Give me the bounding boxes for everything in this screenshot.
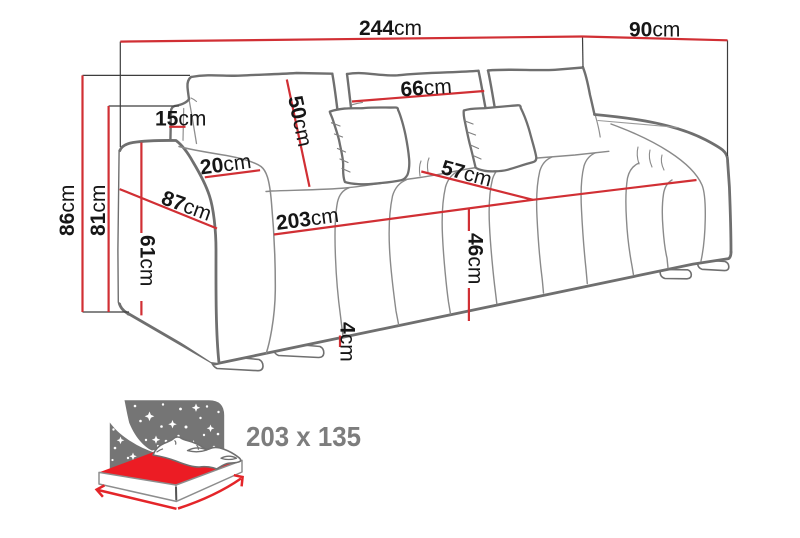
svg-text:66cm: 66cm [400, 75, 453, 102]
svg-text:90cm: 90cm [629, 19, 680, 42]
svg-text:61cm: 61cm [136, 235, 159, 286]
svg-text:244cm: 244cm [359, 17, 422, 40]
svg-text:81cm: 81cm [87, 185, 110, 236]
svg-text:86cm: 86cm [56, 185, 79, 236]
svg-text:4cm: 4cm [336, 322, 359, 362]
svg-text:46cm: 46cm [464, 233, 487, 284]
svg-text:15cm: 15cm [155, 108, 206, 131]
svg-text:203 x 135: 203 x 135 [246, 421, 361, 452]
